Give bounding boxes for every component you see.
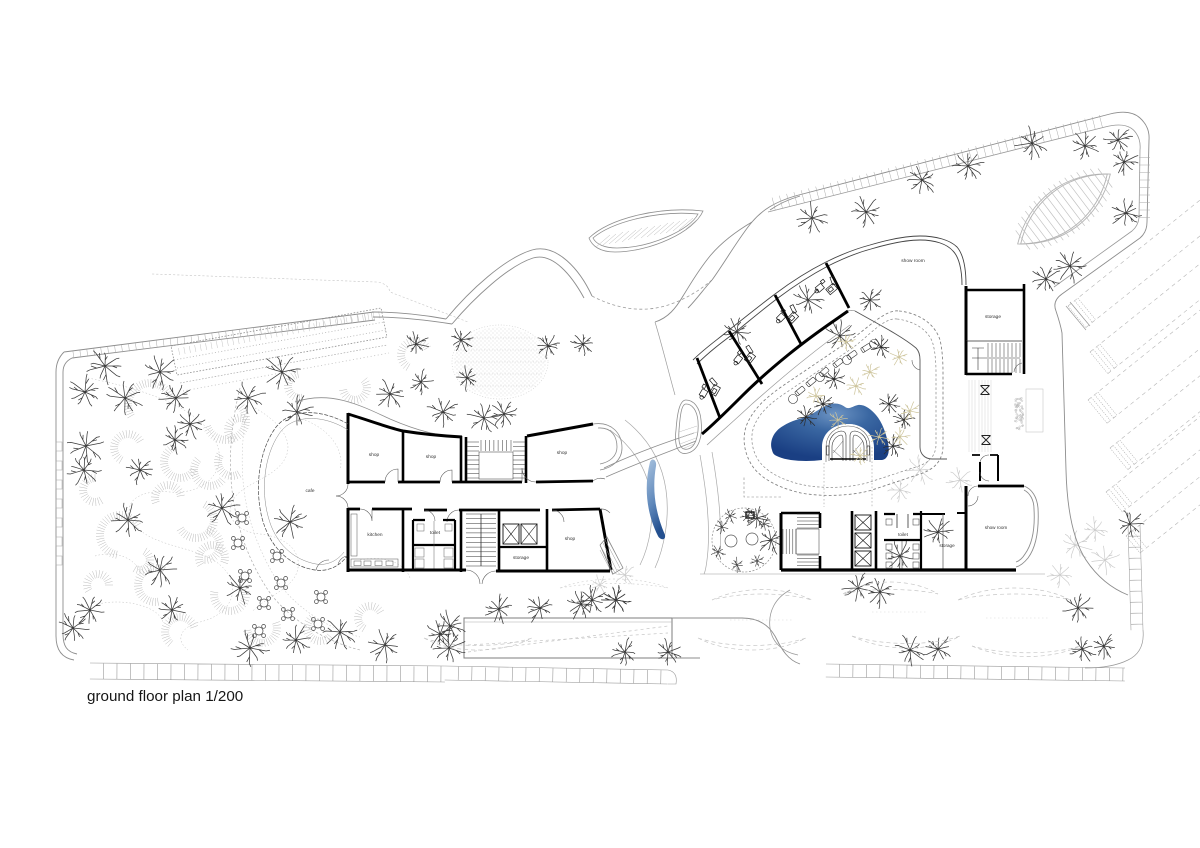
svg-text:show room: show room bbox=[985, 525, 1008, 530]
svg-text:shop: shop bbox=[369, 452, 380, 458]
svg-text:ground floor plan 1/200: ground floor plan 1/200 bbox=[87, 688, 243, 705]
svg-text:shop: shop bbox=[565, 536, 576, 542]
svg-text:storage: storage bbox=[985, 314, 1001, 320]
svg-text:storage: storage bbox=[939, 543, 955, 548]
svg-text:cafe: cafe bbox=[305, 488, 314, 494]
svg-text:storage: storage bbox=[513, 555, 529, 561]
svg-text:show room: show room bbox=[901, 258, 924, 264]
svg-text:kitchen: kitchen bbox=[367, 532, 383, 538]
svg-text:toilet: toilet bbox=[430, 530, 441, 536]
svg-text:shop: shop bbox=[426, 454, 437, 460]
svg-text:shop: shop bbox=[557, 450, 568, 456]
svg-text:toilet: toilet bbox=[898, 532, 908, 537]
